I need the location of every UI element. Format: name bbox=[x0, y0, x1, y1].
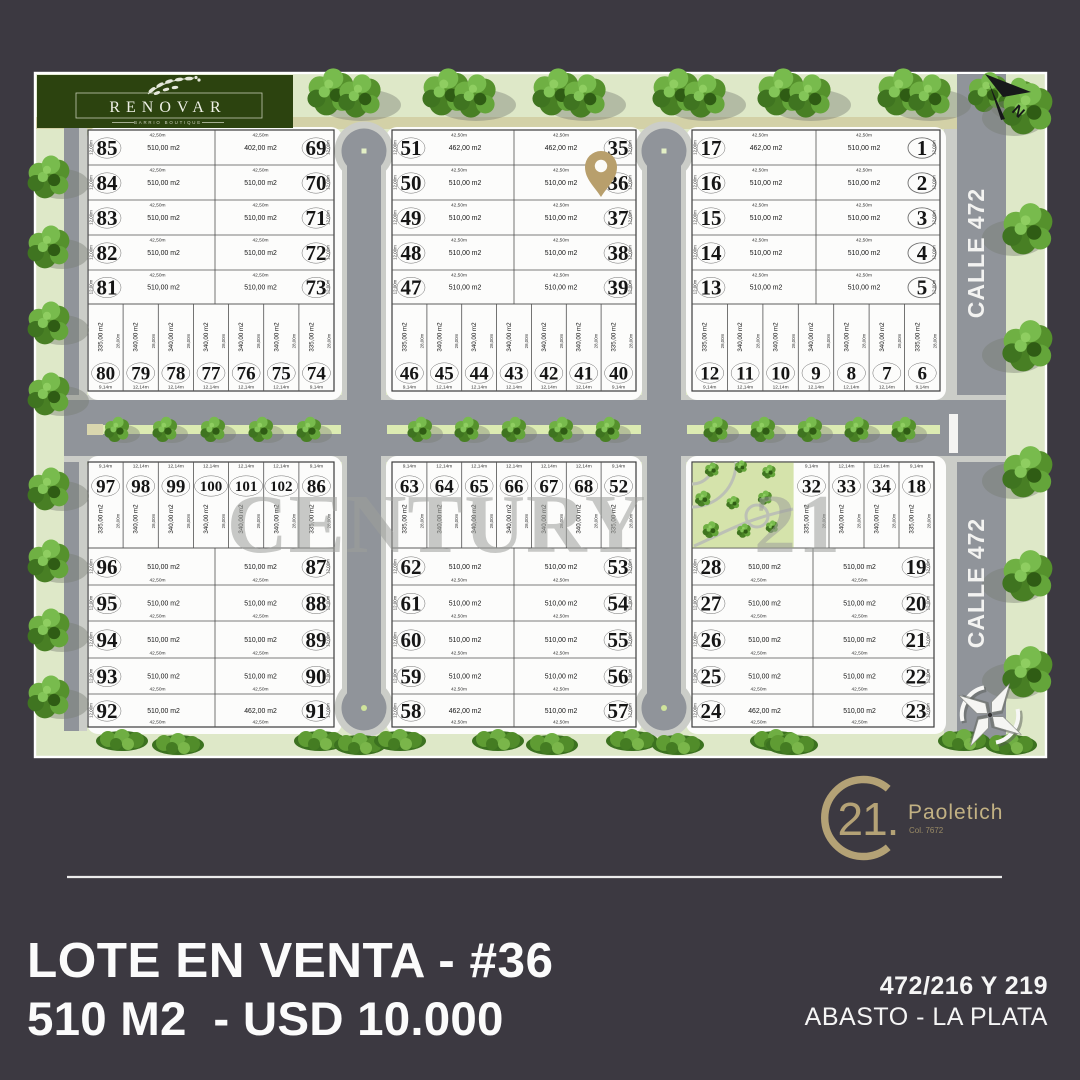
svg-text:510,00 m2: 510,00 m2 bbox=[848, 215, 881, 222]
svg-text:28,00m: 28,00m bbox=[489, 333, 494, 348]
svg-text:61: 61 bbox=[401, 592, 422, 616]
svg-text:510,00 m2: 510,00 m2 bbox=[147, 145, 180, 152]
svg-text:93: 93 bbox=[97, 665, 118, 689]
svg-text:12,14m: 12,14m bbox=[506, 464, 522, 470]
svg-text:28,00m: 28,00m bbox=[151, 333, 156, 348]
svg-text:89: 89 bbox=[306, 628, 327, 652]
svg-text:510,00 m2: 510,00 m2 bbox=[545, 285, 578, 292]
svg-text:28,00m: 28,00m bbox=[524, 333, 529, 348]
svg-text:472/216 Y 219: 472/216 Y 219 bbox=[880, 972, 1048, 1000]
svg-text:42,50m: 42,50m bbox=[852, 687, 868, 693]
svg-text:28,00m: 28,00m bbox=[256, 333, 261, 348]
svg-text:47: 47 bbox=[401, 276, 422, 300]
svg-text:12,14m: 12,14m bbox=[839, 464, 855, 470]
svg-text:462,00 m2: 462,00 m2 bbox=[545, 145, 578, 152]
svg-text:42,50m: 42,50m bbox=[553, 687, 569, 693]
svg-text:510,00 m2: 510,00 m2 bbox=[843, 708, 876, 715]
svg-text:42,50m: 42,50m bbox=[856, 238, 872, 244]
svg-text:12,00m: 12,00m bbox=[926, 632, 931, 647]
svg-text:42,50m: 42,50m bbox=[253, 614, 269, 620]
svg-text:335,00 m2: 335,00 m2 bbox=[914, 322, 921, 352]
svg-text:12,00m: 12,00m bbox=[932, 279, 937, 294]
svg-text:43: 43 bbox=[505, 363, 524, 384]
svg-text:510,00 m2: 510,00 m2 bbox=[545, 215, 578, 222]
svg-text:510,00 m2: 510,00 m2 bbox=[244, 601, 277, 608]
svg-text:42,50m: 42,50m bbox=[553, 133, 569, 139]
svg-text:21.: 21. bbox=[838, 793, 899, 845]
svg-text:28,00m: 28,00m bbox=[327, 333, 332, 348]
svg-text:462,00 m2: 462,00 m2 bbox=[748, 708, 781, 715]
svg-text:24: 24 bbox=[701, 699, 723, 723]
svg-text:42,50m: 42,50m bbox=[553, 203, 569, 209]
svg-text:12,00m: 12,00m bbox=[693, 595, 698, 610]
svg-text:18: 18 bbox=[907, 476, 926, 497]
svg-text:58: 58 bbox=[401, 699, 422, 723]
svg-text:12,00m: 12,00m bbox=[326, 140, 331, 155]
svg-text:12,00m: 12,00m bbox=[89, 210, 94, 225]
svg-text:12,00m: 12,00m bbox=[628, 595, 633, 610]
svg-text:28,00m: 28,00m bbox=[755, 333, 760, 348]
svg-text:12,00m: 12,00m bbox=[926, 703, 931, 718]
svg-text:28,00m: 28,00m bbox=[897, 333, 902, 348]
svg-text:12,00m: 12,00m bbox=[628, 279, 633, 294]
svg-text:340,00 m2: 340,00 m2 bbox=[436, 322, 443, 352]
svg-text:12,14m: 12,14m bbox=[471, 385, 487, 391]
svg-text:9,14m: 9,14m bbox=[99, 464, 112, 470]
svg-text:510,00 m2: 510,00 m2 bbox=[147, 285, 180, 292]
svg-text:510,00 m2: 510,00 m2 bbox=[748, 601, 781, 608]
svg-text:71: 71 bbox=[306, 206, 327, 230]
svg-text:28,00m: 28,00m bbox=[221, 513, 226, 528]
svg-text:340,00 m2: 340,00 m2 bbox=[506, 322, 513, 352]
svg-text:78: 78 bbox=[166, 363, 185, 384]
svg-text:42,50m: 42,50m bbox=[553, 238, 569, 244]
svg-text:12,14m: 12,14m bbox=[541, 464, 557, 470]
svg-text:12,00m: 12,00m bbox=[628, 175, 633, 190]
svg-text:510,00 m2: 510,00 m2 bbox=[545, 674, 578, 681]
svg-text:510,00 m2: 510,00 m2 bbox=[244, 674, 277, 681]
svg-text:54: 54 bbox=[608, 592, 630, 616]
svg-text:12,00m: 12,00m bbox=[393, 210, 398, 225]
svg-text:42,50m: 42,50m bbox=[553, 168, 569, 174]
svg-text:9,14m: 9,14m bbox=[403, 464, 416, 470]
svg-text:69: 69 bbox=[306, 136, 327, 160]
svg-text:12,00m: 12,00m bbox=[89, 279, 94, 294]
svg-text:340,00 m2: 340,00 m2 bbox=[843, 322, 850, 352]
svg-text:340,00 m2: 340,00 m2 bbox=[203, 504, 210, 534]
svg-text:98: 98 bbox=[131, 476, 150, 497]
svg-text:42,50m: 42,50m bbox=[150, 720, 166, 726]
svg-text:99: 99 bbox=[166, 476, 185, 497]
svg-text:28,00m: 28,00m bbox=[186, 333, 191, 348]
svg-text:510,00 m2: 510,00 m2 bbox=[449, 601, 482, 608]
svg-text:42,50m: 42,50m bbox=[751, 651, 767, 657]
svg-text:42,50m: 42,50m bbox=[150, 273, 166, 279]
svg-text:2: 2 bbox=[917, 171, 928, 195]
svg-text:510,00 m2: 510,00 m2 bbox=[244, 285, 277, 292]
svg-text:28,00m: 28,00m bbox=[933, 333, 938, 348]
svg-text:82: 82 bbox=[97, 241, 118, 265]
svg-text:510,00 m2: 510,00 m2 bbox=[244, 180, 277, 187]
svg-text:340,00 m2: 340,00 m2 bbox=[879, 322, 886, 352]
svg-text:12,00m: 12,00m bbox=[693, 175, 698, 190]
svg-text:28,00m: 28,00m bbox=[857, 513, 862, 528]
svg-text:340,00 m2: 340,00 m2 bbox=[541, 322, 548, 352]
svg-text:340,00 m2: 340,00 m2 bbox=[808, 322, 815, 352]
svg-text:340,00 m2: 340,00 m2 bbox=[168, 322, 175, 352]
svg-text:12,14m: 12,14m bbox=[471, 464, 487, 470]
svg-text:335,00 m2: 335,00 m2 bbox=[909, 504, 916, 534]
svg-text:340,00 m2: 340,00 m2 bbox=[773, 322, 780, 352]
svg-text:12,00m: 12,00m bbox=[932, 245, 937, 260]
svg-text:28,00m: 28,00m bbox=[791, 333, 796, 348]
svg-text:11: 11 bbox=[736, 363, 754, 384]
svg-text:14: 14 bbox=[701, 241, 723, 265]
svg-text:95: 95 bbox=[97, 592, 118, 616]
svg-text:8: 8 bbox=[847, 363, 857, 384]
svg-text:9,14m: 9,14m bbox=[612, 464, 625, 470]
svg-text:10: 10 bbox=[771, 363, 790, 384]
svg-text:335,00 m2: 335,00 m2 bbox=[98, 322, 105, 352]
svg-text:12,00m: 12,00m bbox=[393, 703, 398, 718]
svg-text:12,14m: 12,14m bbox=[203, 464, 219, 470]
svg-text:4: 4 bbox=[917, 241, 928, 265]
svg-text:42,50m: 42,50m bbox=[553, 273, 569, 279]
svg-text:510,00 m2: 510,00 m2 bbox=[843, 601, 876, 608]
svg-text:34: 34 bbox=[872, 476, 892, 497]
svg-text:12,14m: 12,14m bbox=[436, 464, 452, 470]
svg-text:42,50m: 42,50m bbox=[752, 238, 768, 244]
svg-text:42,50m: 42,50m bbox=[451, 168, 467, 174]
svg-text:9,14m: 9,14m bbox=[310, 464, 323, 470]
svg-text:28,00m: 28,00m bbox=[892, 513, 897, 528]
svg-text:510,00 m2: 510,00 m2 bbox=[244, 250, 277, 257]
svg-text:42,50m: 42,50m bbox=[751, 687, 767, 693]
svg-text:9,14m: 9,14m bbox=[99, 385, 112, 391]
svg-text:510,00 m2: 510,00 m2 bbox=[545, 250, 578, 257]
svg-text:60: 60 bbox=[401, 628, 422, 652]
svg-text:9,14m: 9,14m bbox=[612, 385, 625, 391]
svg-text:42,50m: 42,50m bbox=[150, 238, 166, 244]
svg-text:42,50m: 42,50m bbox=[253, 238, 269, 244]
svg-text:12,00m: 12,00m bbox=[926, 668, 931, 683]
svg-text:51: 51 bbox=[401, 136, 422, 160]
svg-text:28,00m: 28,00m bbox=[186, 513, 191, 528]
svg-text:42,50m: 42,50m bbox=[150, 203, 166, 209]
svg-text:340,00 m2: 340,00 m2 bbox=[737, 322, 744, 352]
svg-text:42,50m: 42,50m bbox=[751, 720, 767, 726]
svg-text:42,50m: 42,50m bbox=[852, 578, 868, 584]
svg-text:510,00 m2: 510,00 m2 bbox=[843, 564, 876, 571]
svg-text:37: 37 bbox=[608, 206, 629, 230]
svg-text:12,14m: 12,14m bbox=[203, 385, 219, 391]
svg-text:402,00 m2: 402,00 m2 bbox=[244, 145, 277, 152]
svg-text:88: 88 bbox=[306, 592, 327, 616]
svg-text:25: 25 bbox=[701, 665, 722, 689]
svg-text:340,00 m2: 340,00 m2 bbox=[471, 322, 478, 352]
svg-text:42,50m: 42,50m bbox=[451, 133, 467, 139]
svg-text:12,14m: 12,14m bbox=[773, 385, 789, 391]
svg-text:510,00 m2: 510,00 m2 bbox=[750, 250, 783, 257]
svg-text:510,00 m2: 510,00 m2 bbox=[545, 180, 578, 187]
svg-text:100: 100 bbox=[200, 479, 223, 495]
svg-text:5: 5 bbox=[917, 276, 928, 300]
svg-text:55: 55 bbox=[608, 628, 629, 652]
svg-text:42,50m: 42,50m bbox=[150, 614, 166, 620]
svg-text:42,50m: 42,50m bbox=[451, 273, 467, 279]
svg-text:12,00m: 12,00m bbox=[926, 559, 931, 574]
svg-text:CALLE 472: CALLE 472 bbox=[963, 188, 989, 318]
svg-text:510,00 m2: 510,00 m2 bbox=[449, 674, 482, 681]
svg-text:41: 41 bbox=[574, 363, 593, 384]
svg-text:12,14m: 12,14m bbox=[238, 385, 254, 391]
svg-text:9,14m: 9,14m bbox=[805, 464, 818, 470]
svg-text:510,00 m2: 510,00 m2 bbox=[449, 250, 482, 257]
svg-text:70: 70 bbox=[306, 171, 327, 195]
svg-text:462,00 m2: 462,00 m2 bbox=[449, 708, 482, 715]
svg-text:80: 80 bbox=[96, 363, 115, 384]
svg-text:510,00 m2: 510,00 m2 bbox=[545, 708, 578, 715]
svg-text:28,00m: 28,00m bbox=[594, 333, 599, 348]
svg-text:12,14m: 12,14m bbox=[879, 385, 895, 391]
svg-text:74: 74 bbox=[307, 363, 327, 384]
svg-text:28,00m: 28,00m bbox=[862, 333, 867, 348]
svg-text:42,50m: 42,50m bbox=[856, 133, 872, 139]
svg-text:12,14m: 12,14m bbox=[843, 385, 859, 391]
svg-text:15: 15 bbox=[701, 206, 722, 230]
svg-text:510,00 m2: 510,00 m2 bbox=[147, 215, 180, 222]
svg-text:462,00 m2: 462,00 m2 bbox=[449, 145, 482, 152]
svg-text:12,00m: 12,00m bbox=[628, 245, 633, 260]
svg-text:21: 21 bbox=[906, 628, 927, 652]
svg-text:510,00 m2: 510,00 m2 bbox=[449, 637, 482, 644]
svg-text:12,00m: 12,00m bbox=[932, 140, 937, 155]
svg-text:12,14m: 12,14m bbox=[436, 385, 452, 391]
svg-text:12,00m: 12,00m bbox=[326, 668, 331, 683]
svg-text:12,00m: 12,00m bbox=[326, 279, 331, 294]
svg-text:12: 12 bbox=[700, 363, 719, 384]
svg-text:72: 72 bbox=[306, 241, 327, 265]
svg-text:56: 56 bbox=[608, 665, 629, 689]
svg-text:40: 40 bbox=[609, 363, 628, 384]
svg-text:12,00m: 12,00m bbox=[393, 632, 398, 647]
svg-text:462,00 m2: 462,00 m2 bbox=[750, 145, 783, 152]
svg-text:42,50m: 42,50m bbox=[752, 133, 768, 139]
svg-text:12,00m: 12,00m bbox=[926, 595, 931, 610]
svg-text:42,50m: 42,50m bbox=[856, 203, 872, 209]
svg-text:12,14m: 12,14m bbox=[133, 464, 149, 470]
svg-text:42,50m: 42,50m bbox=[752, 273, 768, 279]
svg-text:42,50m: 42,50m bbox=[451, 578, 467, 584]
svg-text:45: 45 bbox=[435, 363, 454, 384]
svg-text:12,00m: 12,00m bbox=[628, 703, 633, 718]
svg-text:42,50m: 42,50m bbox=[751, 578, 767, 584]
svg-text:16: 16 bbox=[701, 171, 722, 195]
svg-text:510,00 m2: 510,00 m2 bbox=[147, 180, 180, 187]
svg-text:340,00 m2: 340,00 m2 bbox=[133, 322, 140, 352]
svg-text:79: 79 bbox=[131, 363, 150, 384]
svg-text:12,00m: 12,00m bbox=[393, 595, 398, 610]
svg-text:28,00m: 28,00m bbox=[116, 513, 121, 528]
svg-text:510,00 m2: 510,00 m2 bbox=[748, 637, 781, 644]
svg-text:1: 1 bbox=[917, 136, 928, 160]
svg-text:510,00 m2: 510,00 m2 bbox=[843, 674, 876, 681]
svg-text:77: 77 bbox=[202, 363, 222, 384]
svg-text:510,00 m2: 510,00 m2 bbox=[748, 674, 781, 681]
svg-text:38: 38 bbox=[608, 241, 629, 265]
svg-text:12,14m: 12,14m bbox=[874, 464, 890, 470]
svg-text:13: 13 bbox=[701, 276, 722, 300]
svg-text:27: 27 bbox=[701, 592, 722, 616]
svg-text:20: 20 bbox=[906, 592, 927, 616]
svg-text:42,50m: 42,50m bbox=[253, 168, 269, 174]
svg-text:510,00 m2: 510,00 m2 bbox=[147, 601, 180, 608]
svg-text:21: 21 bbox=[754, 478, 842, 571]
svg-text:510,00 m2: 510,00 m2 bbox=[848, 250, 881, 257]
svg-text:12,00m: 12,00m bbox=[89, 245, 94, 260]
svg-text:12,00m: 12,00m bbox=[393, 668, 398, 683]
svg-text:28: 28 bbox=[701, 555, 722, 579]
svg-text:22: 22 bbox=[906, 665, 927, 689]
svg-text:335,00 m2: 335,00 m2 bbox=[308, 322, 315, 352]
svg-text:42,50m: 42,50m bbox=[553, 578, 569, 584]
svg-text:75: 75 bbox=[272, 363, 291, 384]
svg-text:42,50m: 42,50m bbox=[852, 720, 868, 726]
svg-text:RENOVAR: RENOVAR bbox=[109, 99, 226, 116]
svg-text:84: 84 bbox=[97, 171, 119, 195]
svg-text:92: 92 bbox=[97, 699, 118, 723]
svg-text:91: 91 bbox=[306, 699, 327, 723]
svg-text:510,00 m2: 510,00 m2 bbox=[848, 180, 881, 187]
svg-text:12,00m: 12,00m bbox=[89, 559, 94, 574]
svg-text:42,50m: 42,50m bbox=[253, 651, 269, 657]
svg-text:12,14m: 12,14m bbox=[168, 464, 184, 470]
svg-text:510,00 m2: 510,00 m2 bbox=[449, 215, 482, 222]
svg-text:42,50m: 42,50m bbox=[553, 720, 569, 726]
svg-text:9,14m: 9,14m bbox=[916, 385, 929, 391]
svg-text:42,50m: 42,50m bbox=[451, 614, 467, 620]
svg-text:12,00m: 12,00m bbox=[89, 668, 94, 683]
svg-text:12,14m: 12,14m bbox=[506, 385, 522, 391]
svg-text:42,50m: 42,50m bbox=[150, 133, 166, 139]
svg-text:BARRIO BOUTIQUE: BARRIO BOUTIQUE bbox=[134, 120, 202, 125]
svg-text:9: 9 bbox=[811, 363, 821, 384]
svg-text:510,00 m2: 510,00 m2 bbox=[750, 180, 783, 187]
svg-text:12,00m: 12,00m bbox=[393, 279, 398, 294]
svg-text:510,00 m2: 510,00 m2 bbox=[449, 180, 482, 187]
svg-text:9,14m: 9,14m bbox=[910, 464, 923, 470]
svg-text:81: 81 bbox=[97, 276, 118, 300]
svg-text:12,14m: 12,14m bbox=[576, 385, 592, 391]
svg-text:19: 19 bbox=[906, 555, 927, 579]
svg-text:12,00m: 12,00m bbox=[326, 175, 331, 190]
svg-text:510,00 m2: 510,00 m2 bbox=[545, 637, 578, 644]
svg-text:12,00m: 12,00m bbox=[693, 210, 698, 225]
svg-text:12,00m: 12,00m bbox=[393, 175, 398, 190]
svg-text:LOTE EN VENTA - #36: LOTE EN VENTA - #36 bbox=[27, 933, 554, 988]
svg-text:57: 57 bbox=[608, 699, 629, 723]
svg-text:12,00m: 12,00m bbox=[89, 703, 94, 718]
svg-text:26: 26 bbox=[701, 628, 722, 652]
svg-text:12,14m: 12,14m bbox=[168, 385, 184, 391]
svg-text:42,50m: 42,50m bbox=[451, 720, 467, 726]
svg-text:39: 39 bbox=[608, 276, 629, 300]
svg-text:12,00m: 12,00m bbox=[628, 140, 633, 155]
svg-text:42,50m: 42,50m bbox=[751, 614, 767, 620]
svg-text:28,00m: 28,00m bbox=[116, 333, 121, 348]
svg-text:28,00m: 28,00m bbox=[629, 333, 634, 348]
svg-text:12,00m: 12,00m bbox=[393, 140, 398, 155]
svg-text:510,00 m2: 510,00 m2 bbox=[147, 250, 180, 257]
svg-text:12,00m: 12,00m bbox=[693, 559, 698, 574]
svg-text:12,00m: 12,00m bbox=[89, 632, 94, 647]
svg-text:9,14m: 9,14m bbox=[310, 385, 323, 391]
svg-text:12,00m: 12,00m bbox=[89, 595, 94, 610]
svg-text:42,50m: 42,50m bbox=[253, 687, 269, 693]
svg-text:12,14m: 12,14m bbox=[737, 385, 753, 391]
svg-text:462,00 m2: 462,00 m2 bbox=[244, 708, 277, 715]
svg-text:50: 50 bbox=[401, 171, 422, 195]
svg-text:12,00m: 12,00m bbox=[628, 210, 633, 225]
svg-text:28,00m: 28,00m bbox=[826, 333, 831, 348]
svg-text:12,00m: 12,00m bbox=[393, 245, 398, 260]
svg-text:42,50m: 42,50m bbox=[150, 578, 166, 584]
svg-text:Col. 7672: Col. 7672 bbox=[909, 826, 944, 835]
svg-text:28,00m: 28,00m bbox=[559, 333, 564, 348]
svg-text:48: 48 bbox=[401, 241, 422, 265]
svg-text:12,14m: 12,14m bbox=[273, 464, 289, 470]
svg-text:42,50m: 42,50m bbox=[752, 168, 768, 174]
svg-text:46: 46 bbox=[400, 363, 419, 384]
svg-text:12,00m: 12,00m bbox=[628, 668, 633, 683]
svg-text:12,00m: 12,00m bbox=[326, 595, 331, 610]
svg-text:340,00 m2: 340,00 m2 bbox=[168, 504, 175, 534]
svg-text:49: 49 bbox=[401, 206, 422, 230]
svg-text:12,00m: 12,00m bbox=[932, 175, 937, 190]
svg-text:340,00 m2: 340,00 m2 bbox=[203, 322, 210, 352]
svg-text:510,00 m2: 510,00 m2 bbox=[147, 637, 180, 644]
svg-text:42,50m: 42,50m bbox=[253, 578, 269, 584]
svg-text:12,00m: 12,00m bbox=[326, 245, 331, 260]
svg-text:12,00m: 12,00m bbox=[326, 210, 331, 225]
svg-text:510,00 m2: 510,00 m2 bbox=[147, 674, 180, 681]
svg-text:12,00m: 12,00m bbox=[932, 210, 937, 225]
svg-text:ABASTO - LA PLATA: ABASTO - LA PLATA bbox=[805, 1003, 1048, 1031]
svg-text:12,00m: 12,00m bbox=[693, 632, 698, 647]
svg-text:335,00 m2: 335,00 m2 bbox=[611, 322, 618, 352]
svg-text:83: 83 bbox=[97, 206, 118, 230]
svg-text:335,00 m2: 335,00 m2 bbox=[702, 322, 709, 352]
svg-text:335,00 m2: 335,00 m2 bbox=[401, 322, 408, 352]
svg-text:42,50m: 42,50m bbox=[253, 133, 269, 139]
svg-text:28,00m: 28,00m bbox=[927, 513, 932, 528]
svg-text:42,50m: 42,50m bbox=[451, 687, 467, 693]
svg-text:42,50m: 42,50m bbox=[150, 168, 166, 174]
svg-text:42,50m: 42,50m bbox=[856, 273, 872, 279]
svg-text:59: 59 bbox=[401, 665, 422, 689]
svg-text:12,00m: 12,00m bbox=[693, 245, 698, 260]
svg-text:9,14m: 9,14m bbox=[703, 385, 716, 391]
svg-text:12,00m: 12,00m bbox=[693, 668, 698, 683]
svg-text:9,14m: 9,14m bbox=[403, 385, 416, 391]
svg-text:CALLE 472: CALLE 472 bbox=[963, 518, 989, 648]
svg-text:42,50m: 42,50m bbox=[150, 687, 166, 693]
svg-text:85: 85 bbox=[97, 136, 118, 160]
svg-text:42,50m: 42,50m bbox=[553, 651, 569, 657]
svg-text:510,00 m2: 510,00 m2 bbox=[750, 215, 783, 222]
svg-text:12,14m: 12,14m bbox=[808, 385, 824, 391]
svg-text:42,50m: 42,50m bbox=[856, 168, 872, 174]
